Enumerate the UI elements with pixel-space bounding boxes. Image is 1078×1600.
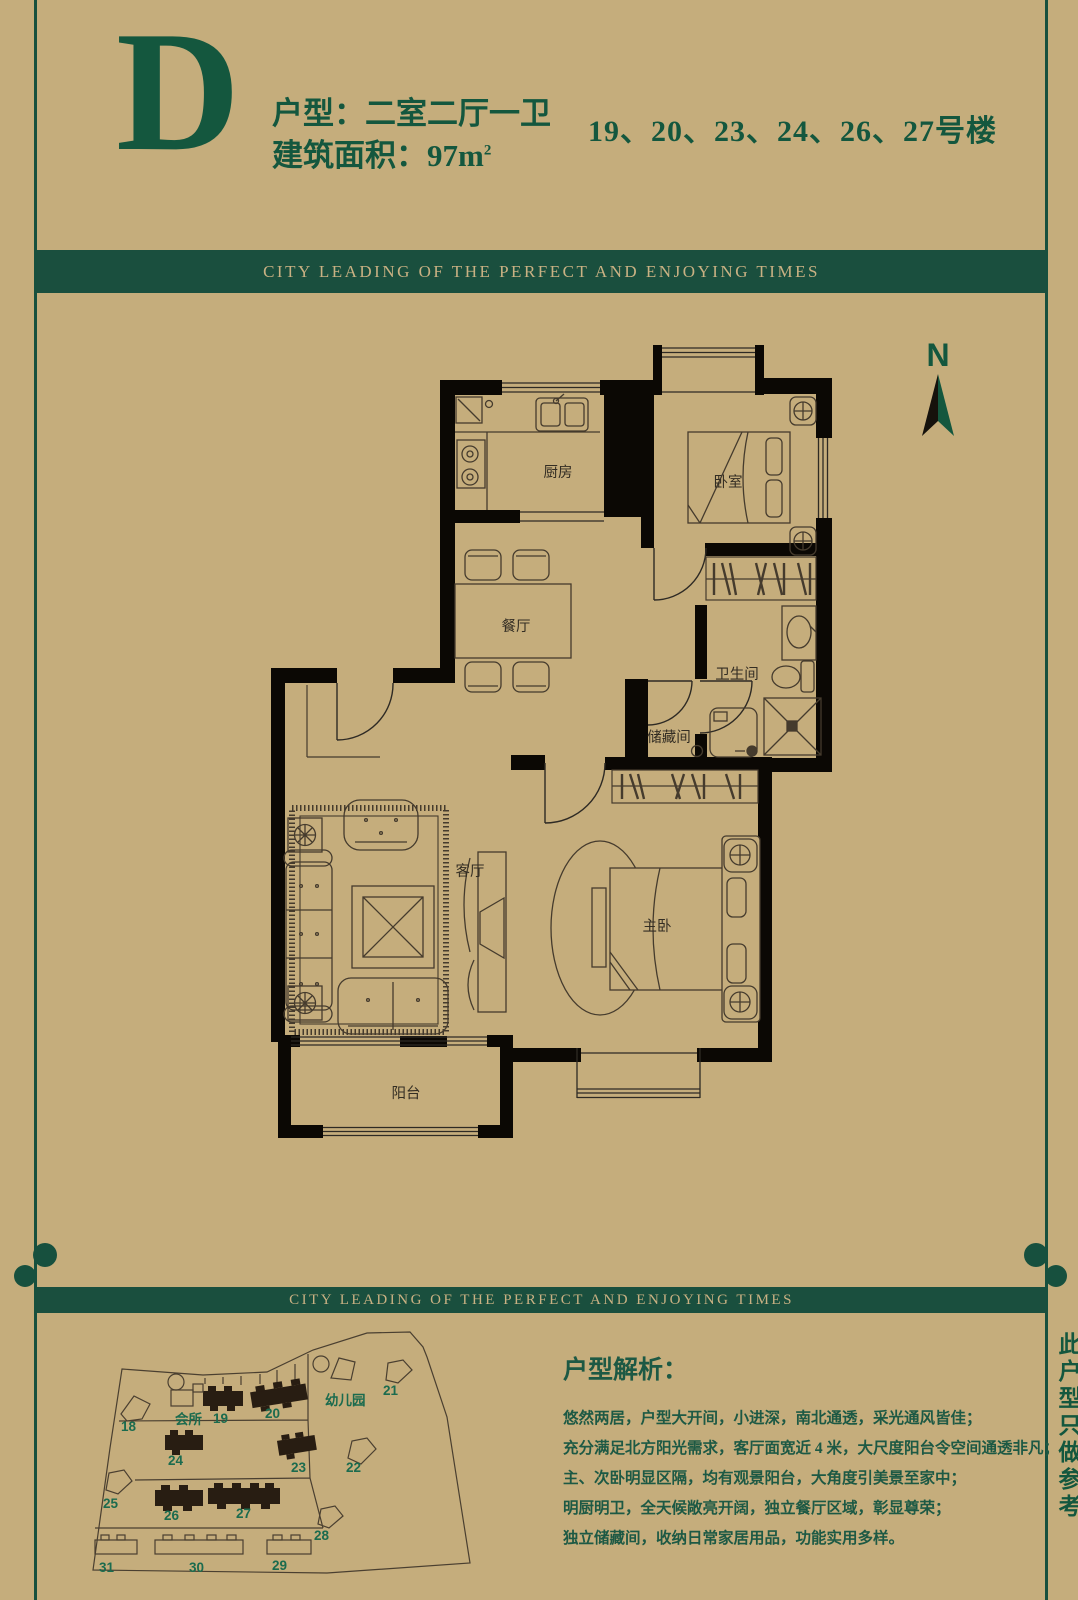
- label-25: 25: [103, 1496, 119, 1511]
- ornament-dot-right-upper: [1024, 1243, 1048, 1267]
- building-23: [276, 1430, 317, 1461]
- kitchen-label: 厨房: [544, 464, 573, 481]
- building-21: [386, 1360, 412, 1383]
- label-24: 24: [168, 1453, 184, 1468]
- bedroom-furniture: [688, 397, 816, 555]
- north-label: N: [926, 337, 949, 373]
- ornament-dot-left-upper: [33, 1243, 57, 1267]
- master-label: 主卧: [643, 918, 672, 935]
- analysis-line: 主、次卧明显区隔，均有观景阳台，大角度引美景至家中；: [563, 1464, 1033, 1494]
- label-30: 30: [189, 1560, 204, 1575]
- living-label: 客厅: [456, 863, 485, 880]
- bathroom-door: [700, 681, 752, 733]
- bottom-banner: CITY LEADING OF THE PERFECT AND ENJOYING…: [37, 1287, 1046, 1313]
- left-rule: [34, 0, 37, 1600]
- building-29: [267, 1535, 311, 1554]
- right-rule: [1045, 0, 1048, 1600]
- label-26: 26: [164, 1508, 180, 1523]
- building-19: [203, 1386, 243, 1411]
- storage-door: [648, 681, 692, 725]
- building-31: [95, 1535, 137, 1554]
- bedroom-door: [654, 548, 706, 600]
- label-23: 23: [291, 1460, 307, 1475]
- kindergarten-building: [313, 1356, 355, 1380]
- label-27: 27: [236, 1506, 251, 1521]
- label-19: 19: [213, 1411, 228, 1426]
- analysis-line: 明厨明卫，全天候敞亮开阔，独立餐厅区域，彰显尊荣；: [563, 1494, 1033, 1524]
- analysis-line: 充分满足北方阳光需求，客厅面宽近 4 米，大尺度阳台令空间通透非凡；: [563, 1434, 1033, 1464]
- balcony-label: 阳台: [392, 1085, 421, 1102]
- storage-label: 储藏间: [647, 729, 691, 746]
- north-arrow-left: [922, 374, 938, 436]
- master-door: [545, 763, 605, 823]
- analysis-heading: 户型解析：: [563, 1350, 1033, 1386]
- label-28: 28: [314, 1528, 330, 1543]
- analysis-line: 悠然两居，户型大开间，小进深，南北通透，采光通风皆佳；: [563, 1404, 1033, 1434]
- label-18: 18: [121, 1419, 137, 1434]
- living-furniture: [284, 800, 506, 1034]
- site-map: 18 会所 19 20 21 幼儿园 24 23 22 25 26 27 28 …: [55, 1318, 485, 1580]
- north-arrow-right: [938, 374, 954, 436]
- clubhouse-building: [168, 1374, 203, 1406]
- site-buildings-highlighted: [155, 1378, 318, 1511]
- label-clubhouse: 会所: [175, 1411, 202, 1427]
- building-24: [165, 1430, 203, 1455]
- reference-note: 此户型只做参考: [1050, 1332, 1078, 1521]
- ornament-dot-right-lower: [1045, 1265, 1067, 1287]
- floor-plan: 厨房 卧室 餐厅 卫生间 储藏间 客厅 主卧 阳台: [258, 330, 838, 1145]
- top-banner: CITY LEADING OF THE PERFECT AND ENJOYING…: [37, 250, 1046, 293]
- label-kindergarten: 幼儿园: [325, 1392, 366, 1408]
- north-compass: N: [912, 336, 964, 440]
- buildings-label: 19、20、23、24、26、27号楼: [588, 106, 997, 150]
- building-25: [106, 1470, 132, 1494]
- entry-guide-line: [307, 685, 380, 757]
- ornament-dot-left-lower: [14, 1265, 36, 1287]
- entry-door: [337, 683, 393, 740]
- analysis-section: 户型解析： 悠然两居，户型大开间，小进深，南北通透，采光通风皆佳； 充分满足北方…: [563, 1350, 1033, 1554]
- analysis-line: 独立储藏间，收纳日常家居用品，功能实用多样。: [563, 1524, 1033, 1554]
- area-text: 建筑面积：97m: [272, 138, 484, 173]
- label-21: 21: [383, 1383, 399, 1398]
- label-20: 20: [265, 1406, 280, 1421]
- dining-label: 餐厅: [502, 618, 531, 635]
- building-18: [121, 1396, 150, 1421]
- label-22: 22: [346, 1460, 361, 1475]
- building-30: [155, 1535, 243, 1554]
- bedroom-label: 卧室: [714, 474, 743, 491]
- label-29: 29: [272, 1558, 287, 1573]
- area-superscript: 2: [484, 143, 492, 159]
- site-buildings-other: [95, 1356, 412, 1554]
- label-31: 31: [99, 1560, 115, 1575]
- page: { "colors": { "background": "#c5ad7c", "…: [0, 0, 1078, 1600]
- kitchen-furniture: [455, 394, 600, 510]
- area-label: 建筑面积：97m2: [272, 130, 491, 175]
- unit-type-label: 户型：二室二厅一卫: [272, 88, 551, 133]
- unit-letter: D: [116, 24, 240, 162]
- bathroom-label: 卫生间: [715, 666, 759, 683]
